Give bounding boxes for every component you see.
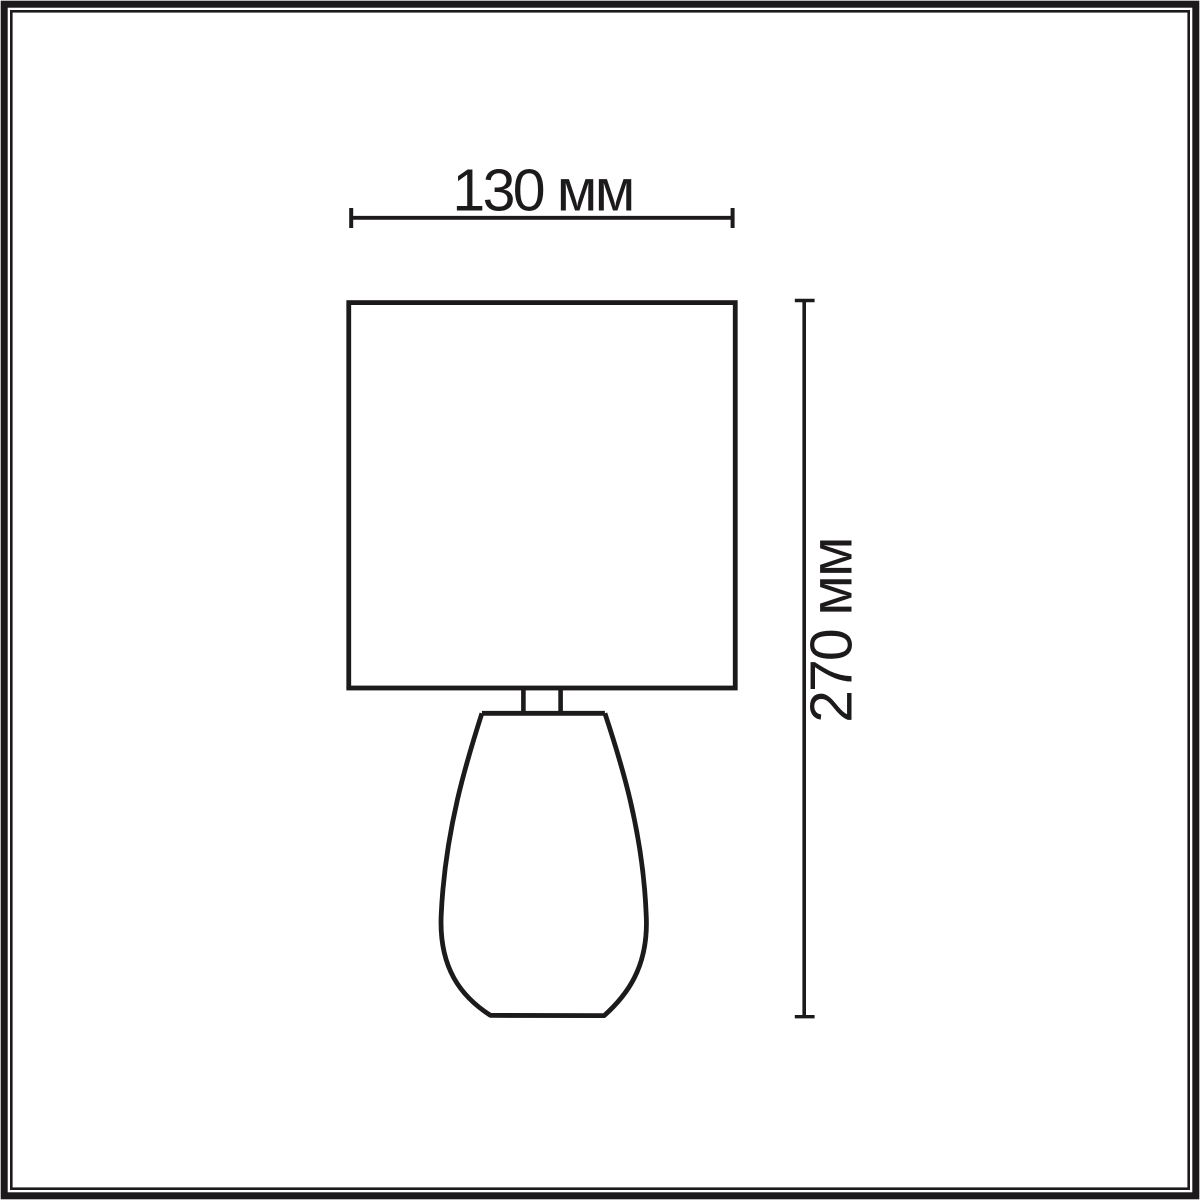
svg-text:270 мм: 270 мм [799,538,865,723]
svg-text:130 мм: 130 мм [452,158,632,224]
